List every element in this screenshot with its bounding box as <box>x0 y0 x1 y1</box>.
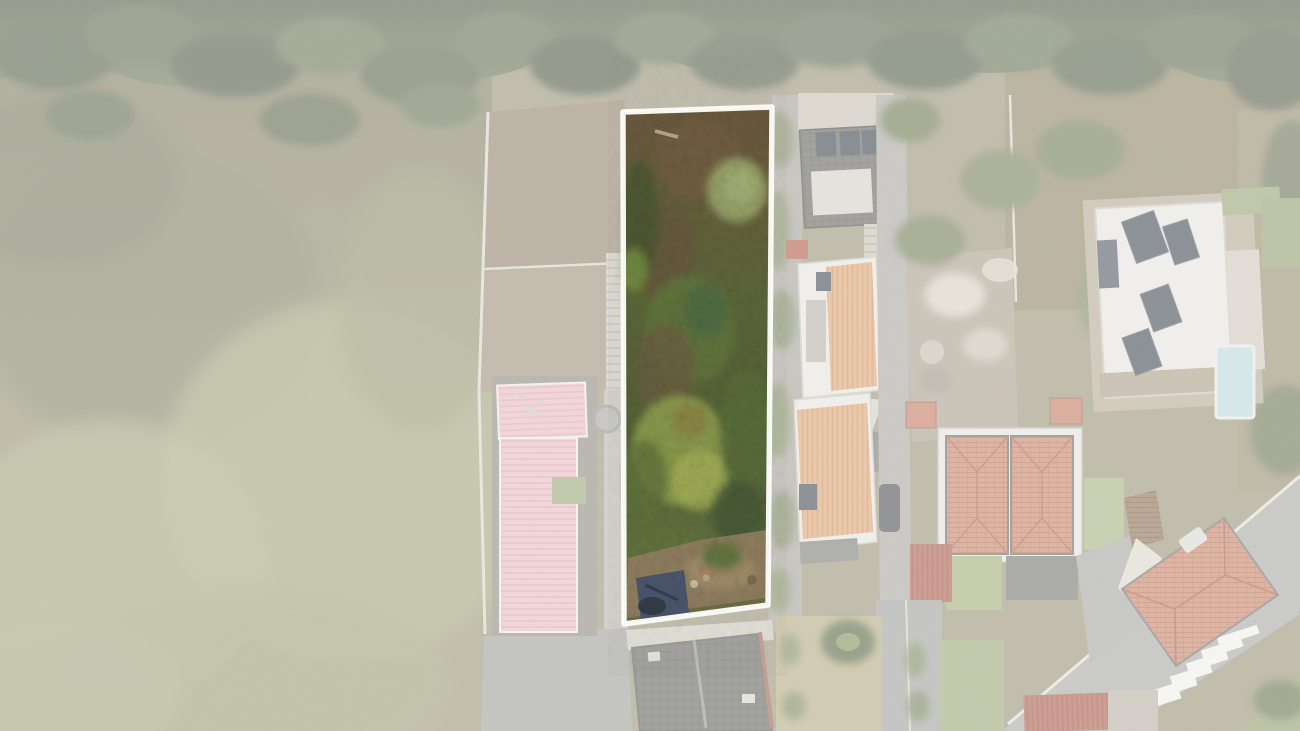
aerial-photo <box>0 0 1300 731</box>
screenshot-root <box>0 0 1300 731</box>
